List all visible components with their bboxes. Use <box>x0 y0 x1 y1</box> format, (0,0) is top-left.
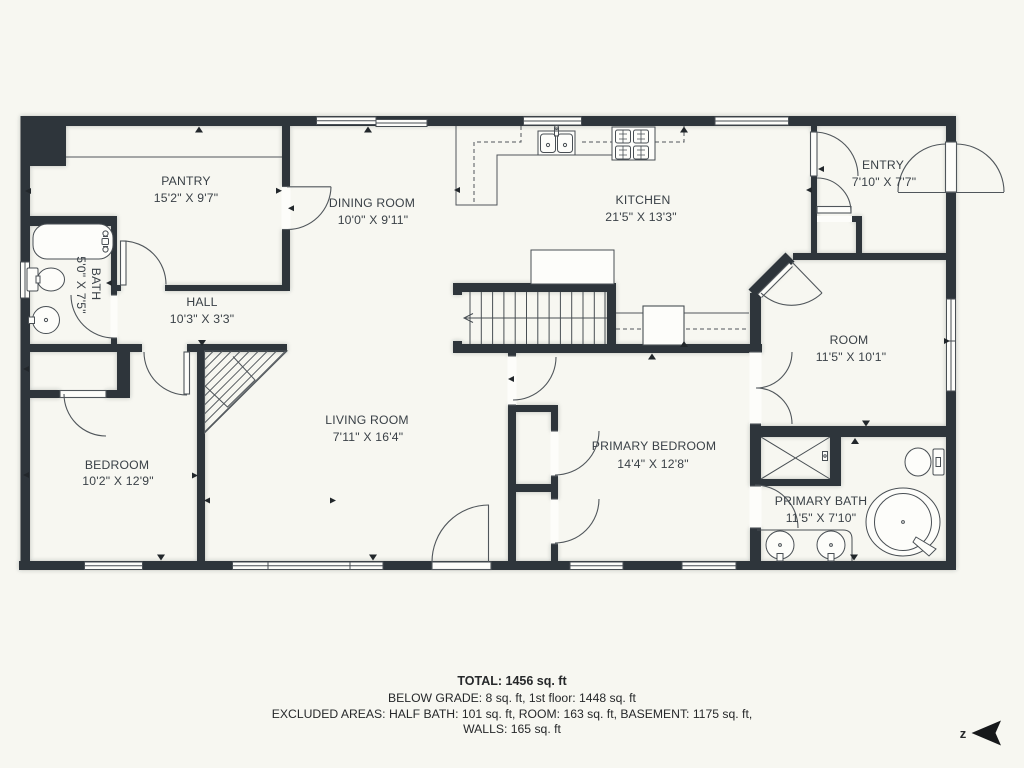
svg-text:21'5" X 13'3": 21'5" X 13'3" <box>605 210 676 224</box>
svg-text:11'5" X 10'1": 11'5" X 10'1" <box>816 350 887 364</box>
svg-text:LIVING ROOM: LIVING ROOM <box>325 413 408 427</box>
svg-text:10'2" X 12'9": 10'2" X 12'9" <box>82 474 153 488</box>
svg-text:ENTRY: ENTRY <box>862 158 904 172</box>
svg-text:KITCHEN: KITCHEN <box>616 193 671 207</box>
svg-text:HALL: HALL <box>186 295 217 309</box>
svg-text:15'2" X 9'7": 15'2" X 9'7" <box>154 191 219 205</box>
svg-text:ROOM: ROOM <box>830 333 869 347</box>
svg-text:11'5" X 7'10": 11'5" X 7'10" <box>786 511 857 525</box>
svg-text:14'4" X 12'8": 14'4" X 12'8" <box>617 457 688 471</box>
svg-text:TOTAL: 1456 sq. ft: TOTAL: 1456 sq. ft <box>457 674 567 688</box>
svg-text:EXCLUDED AREAS: HALF BATH: 101: EXCLUDED AREAS: HALF BATH: 101 sq. ft, R… <box>272 707 752 721</box>
svg-text:10'0" X 9'11": 10'0" X 9'11" <box>338 213 409 227</box>
svg-text:7'10" X 7'7": 7'10" X 7'7" <box>852 175 917 189</box>
svg-text:z: z <box>960 726 967 741</box>
svg-text:DINING ROOM: DINING ROOM <box>329 196 415 210</box>
svg-text:10'3" X 3'3": 10'3" X 3'3" <box>170 312 235 326</box>
svg-text:BELOW GRADE: 8 sq. ft, 1st flo: BELOW GRADE: 8 sq. ft, 1st floor: 1448 s… <box>388 691 637 705</box>
svg-text:PANTRY: PANTRY <box>161 174 211 188</box>
svg-text:BATH: BATH <box>89 268 103 300</box>
svg-text:BEDROOM: BEDROOM <box>85 458 149 472</box>
svg-text:7'11" X 16'4": 7'11" X 16'4" <box>333 430 404 444</box>
svg-text:5'0" X 7'5": 5'0" X 7'5" <box>74 256 88 314</box>
svg-text:PRIMARY BEDROOM: PRIMARY BEDROOM <box>592 439 716 453</box>
svg-text:WALLS: 165 sq. ft: WALLS: 165 sq. ft <box>463 722 561 736</box>
svg-text:PRIMARY BATH: PRIMARY BATH <box>775 494 867 508</box>
